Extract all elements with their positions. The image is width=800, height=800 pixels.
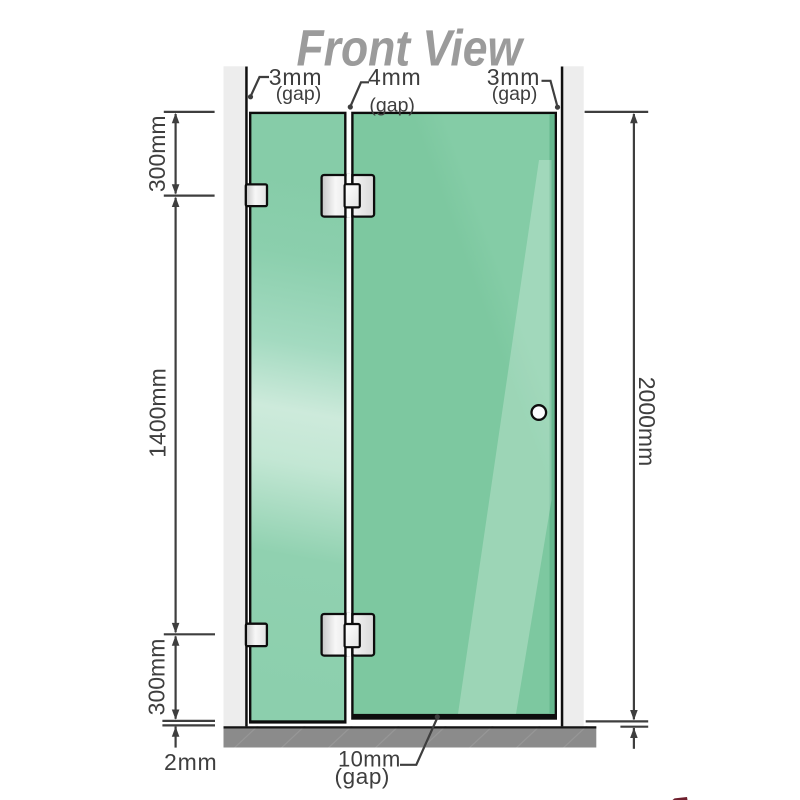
svg-text:(gap): (gap) <box>369 94 415 116</box>
svg-text:300mm: 300mm <box>144 115 170 192</box>
svg-text:(gap): (gap) <box>492 83 538 105</box>
svg-text:1400mm: 1400mm <box>145 368 171 457</box>
svg-text:(gap): (gap) <box>335 764 391 789</box>
svg-text:300mm: 300mm <box>144 639 170 716</box>
svg-text:2000mm: 2000mm <box>634 377 660 466</box>
svg-text:4mm: 4mm <box>368 64 422 90</box>
svg-text:2mm: 2mm <box>164 749 218 775</box>
svg-text:(gap): (gap) <box>276 83 322 105</box>
